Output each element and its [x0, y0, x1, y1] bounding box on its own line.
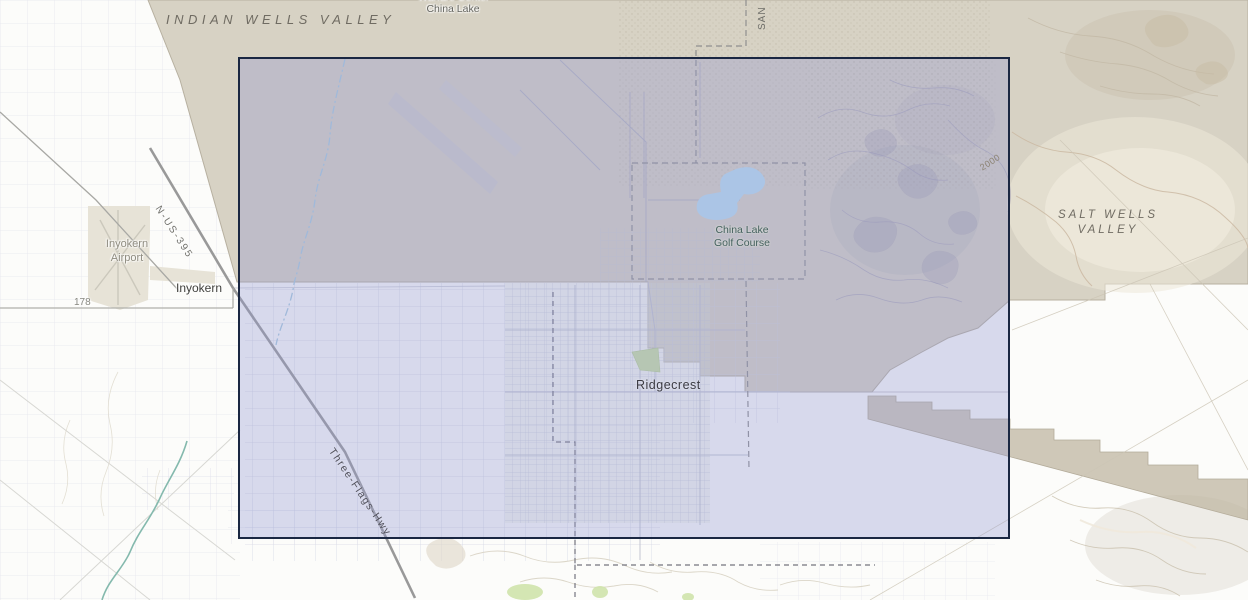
selection-extent[interactable]: [238, 57, 1010, 539]
map-canvas[interactable]: INDIAN WELLS VALLEY SALT WELLS VALLEY Wa…: [0, 0, 1248, 600]
